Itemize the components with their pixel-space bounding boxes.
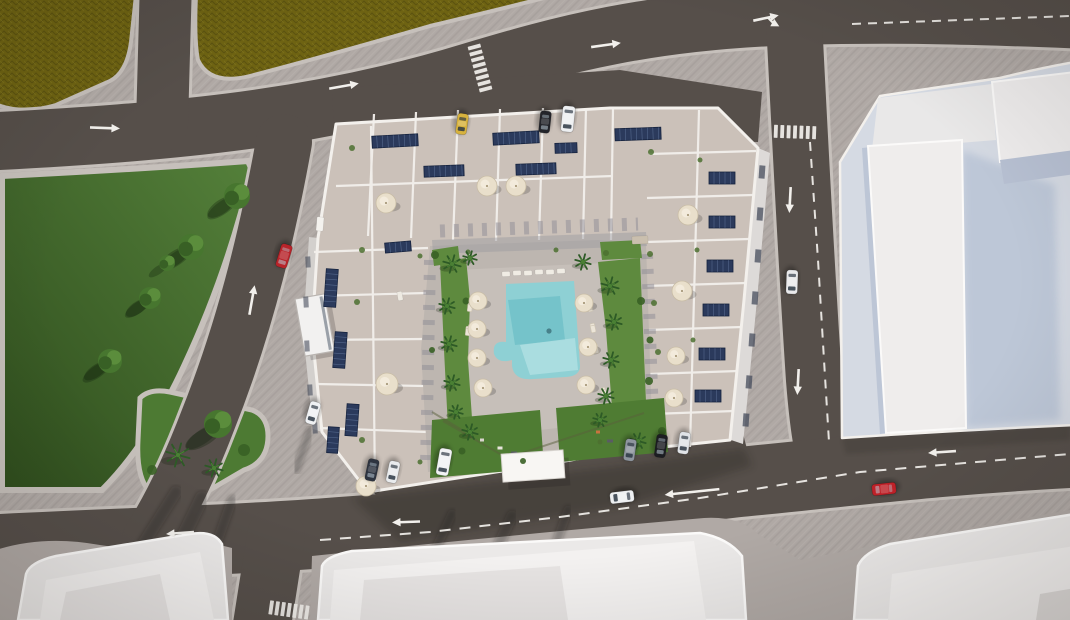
solar-panel-array <box>695 390 721 402</box>
solar-panel-array <box>516 163 556 175</box>
facade-window <box>755 249 762 262</box>
solar-panel-array <box>709 216 735 228</box>
terrace-item <box>557 268 565 273</box>
tower-roof <box>868 140 966 433</box>
solar-panel-array <box>709 172 735 184</box>
road-right-vertical <box>794 20 828 470</box>
solar-panel-array <box>424 165 464 177</box>
roof-plant <box>691 338 696 343</box>
terrace-item <box>524 270 532 275</box>
roof-plant <box>359 437 365 443</box>
bush <box>459 448 466 455</box>
roof-plant <box>418 460 423 465</box>
roof-plant <box>651 300 657 306</box>
facade-window <box>305 256 311 267</box>
facade-window <box>303 296 309 307</box>
roof-plant <box>655 349 661 355</box>
facade-window <box>757 207 764 220</box>
roof-plant <box>359 247 365 253</box>
terrace-item <box>316 217 324 232</box>
facade-window <box>752 291 759 304</box>
solar-panel-array <box>699 348 725 360</box>
roof-plant <box>603 250 609 256</box>
solar-panel-array <box>493 131 540 145</box>
road-side-street-south <box>262 536 276 620</box>
scene-canvas <box>0 0 1070 620</box>
roof-plant <box>354 299 360 305</box>
bush <box>429 347 435 353</box>
playground-lawn-right <box>556 398 668 462</box>
right-building-complex <box>840 62 1070 438</box>
aerial-render-scene <box>0 0 1070 620</box>
bush <box>637 297 645 305</box>
facade-window <box>759 165 766 178</box>
terrace-item <box>513 270 521 275</box>
solar-panel-array <box>327 427 340 454</box>
solar-panel-array <box>703 304 729 316</box>
bush <box>147 465 157 475</box>
roof-plant <box>647 251 653 257</box>
playground-item <box>498 447 503 450</box>
roof-plant <box>648 149 654 155</box>
bush <box>647 337 654 344</box>
road-top-stub <box>162 0 166 125</box>
roof-plant <box>418 254 423 259</box>
roof-plant <box>554 248 559 253</box>
entrance-canopy <box>501 450 570 491</box>
corner-box-roof <box>992 72 1070 162</box>
bush <box>463 298 470 305</box>
solar-panel-array <box>615 127 661 141</box>
roof-plant <box>598 440 603 445</box>
playground-item <box>480 439 484 442</box>
solar-panel-array <box>555 143 577 154</box>
facade-window <box>304 340 310 351</box>
bush <box>431 251 439 259</box>
terrace-item <box>535 269 543 274</box>
terrace-item <box>502 271 510 276</box>
roof-plant <box>349 145 355 151</box>
bush <box>238 444 250 456</box>
facade-window <box>746 375 753 388</box>
facade-window <box>743 413 750 426</box>
tower-cast-shadow <box>962 150 1060 428</box>
solar-panel-array <box>385 241 412 253</box>
swimmer <box>546 328 551 333</box>
solar-panel-array <box>345 404 359 437</box>
roof-plant <box>698 158 703 163</box>
roof-plant <box>695 248 700 253</box>
bush <box>520 458 526 464</box>
terrace-item <box>546 269 554 274</box>
solar-panel-array <box>333 332 347 369</box>
playground-item <box>596 431 600 434</box>
bush <box>645 377 653 385</box>
facade-window <box>749 333 756 346</box>
terrace-item <box>632 236 648 245</box>
facade-window <box>307 384 313 395</box>
solar-panel-array <box>707 260 733 272</box>
solar-panel-array <box>372 134 419 148</box>
solar-panel-array <box>324 269 339 308</box>
playground-item <box>607 440 613 443</box>
